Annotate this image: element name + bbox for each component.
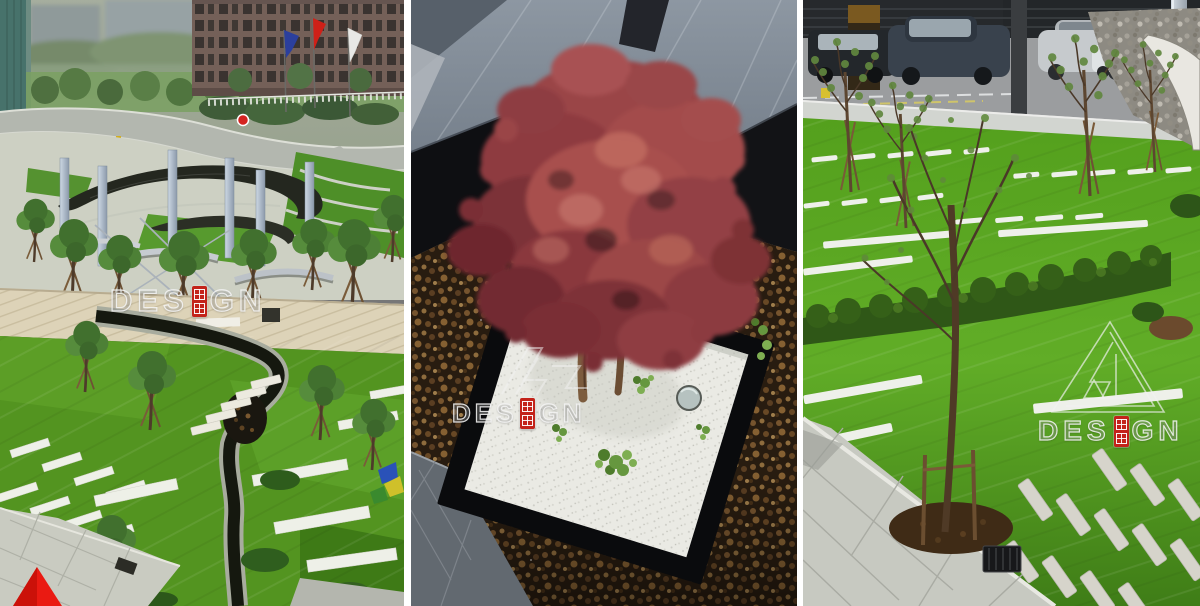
photo-collage: DESGN DESGN DESGN (0, 0, 1200, 606)
dark-column (1011, 0, 1027, 122)
aerial-park-illustration (0, 0, 404, 606)
brick-building (192, 0, 404, 125)
road-sign (238, 115, 249, 126)
photo-aerial-park (0, 0, 404, 606)
glass-light-fixture (677, 386, 701, 410)
maple-planter-illustration (411, 0, 797, 606)
blue-grey-car (888, 16, 1010, 85)
lawn-illustration (803, 0, 1200, 606)
drain-grate (983, 546, 1021, 572)
photo-maple-planter (411, 0, 797, 606)
photo-lawn-stepping-stones (803, 0, 1200, 606)
